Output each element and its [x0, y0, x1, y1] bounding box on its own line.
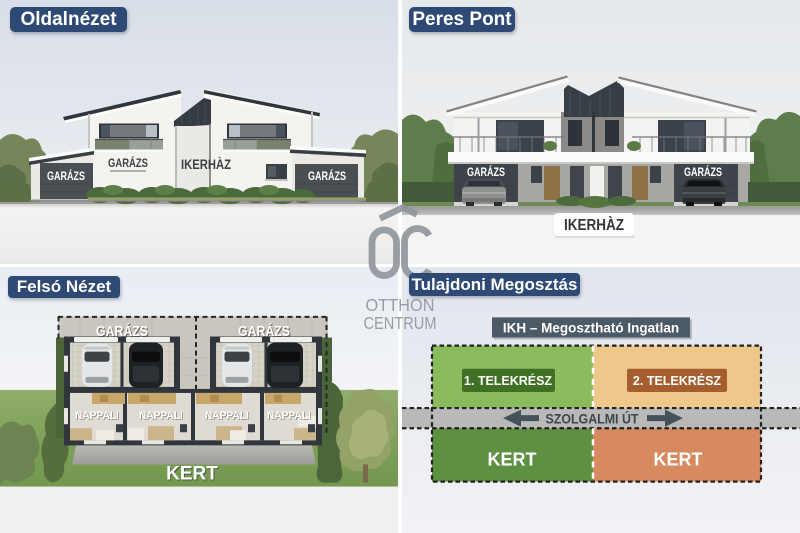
svg-text:KERT: KERT: [654, 449, 703, 469]
svg-text:IKH – Megosztható Ingatlan: IKH – Megosztható Ingatlan: [503, 320, 679, 335]
svg-text:NAPPALI: NAPPALI: [139, 410, 183, 422]
svg-text:GARÁZS: GARÁZS: [467, 164, 505, 179]
svg-text:GARÁZS: GARÁZS: [308, 170, 346, 183]
svg-text:NAPPALI: NAPPALI: [75, 410, 119, 422]
svg-text:KERT: KERT: [488, 449, 537, 469]
svg-text:OTTHON: OTTHON: [366, 295, 435, 315]
svg-text:GARÁZS: GARÁZS: [47, 170, 85, 183]
svg-text:1. TELEKRÉSZ: 1. TELEKRÉSZ: [464, 373, 552, 388]
svg-text:IKERHÀZ: IKERHÀZ: [181, 157, 231, 172]
svg-text:IKERHÀZ: IKERHÀZ: [564, 215, 624, 234]
svg-text:CENTRUM: CENTRUM: [364, 313, 437, 333]
svg-text:2. TELEKRÉSZ: 2. TELEKRÉSZ: [633, 373, 721, 388]
svg-text:GARÁZS: GARÁZS: [684, 164, 722, 179]
svg-text:NAPPALI: NAPPALI: [205, 410, 249, 422]
svg-text:KERT: KERT: [166, 464, 218, 485]
svg-text:NAPPALI: NAPPALI: [267, 410, 311, 422]
svg-text:SZOLGALMI ÚT: SZOLGALMI ÚT: [546, 410, 639, 427]
svg-text:GARÁZS: GARÁZS: [108, 157, 148, 170]
